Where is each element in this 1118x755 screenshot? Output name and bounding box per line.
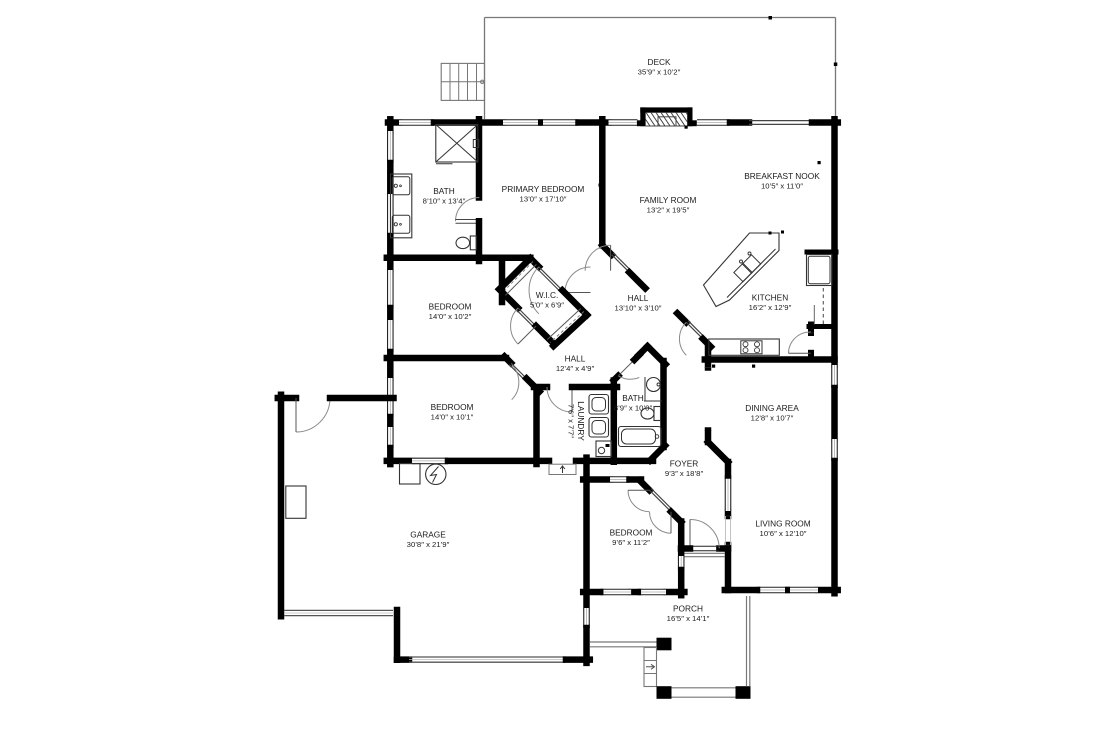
- svg-text:BEDROOM: BEDROOM: [610, 528, 653, 538]
- svg-text:16’5″ x 14’1″: 16’5″ x 14’1″: [667, 614, 710, 623]
- svg-text:10’6″ x 12’10″: 10’6″ x 12’10″: [760, 529, 807, 538]
- svg-text:BEDROOM: BEDROOM: [431, 402, 474, 412]
- svg-text:13’10″ x 3’10″: 13’10″ x 3’10″: [615, 304, 662, 313]
- svg-text:13’0″ x 17’10″: 13’0″ x 17’10″: [520, 195, 567, 204]
- svg-text:HALL: HALL: [628, 293, 649, 303]
- svg-text:HALL: HALL: [565, 354, 586, 364]
- svg-text:DECK: DECK: [647, 57, 671, 67]
- svg-text:16’2″ x 12’9″: 16’2″ x 12’9″: [749, 303, 792, 312]
- svg-text:14’0″ x 10’1″: 14’0″ x 10’1″: [431, 413, 474, 422]
- svg-text:7’6″ x 7’7″: 7’6″ x 7’7″: [567, 404, 576, 438]
- svg-text:12’8″ x 10’7″: 12’8″ x 10’7″: [751, 414, 794, 423]
- svg-text:9’3″ x 18’8″: 9’3″ x 18’8″: [665, 469, 704, 478]
- svg-text:PORCH: PORCH: [673, 604, 703, 614]
- svg-text:5’0″ x 6’9″: 5’0″ x 6’9″: [530, 301, 564, 310]
- svg-text:14’0″ x 10’2″: 14’0″ x 10’2″: [429, 312, 472, 321]
- svg-text:8’10″ x 13’4″: 8’10″ x 13’4″: [423, 197, 466, 206]
- svg-text:FOYER: FOYER: [670, 459, 699, 469]
- svg-text:9’6″ x 11’2″: 9’6″ x 11’2″: [612, 538, 650, 547]
- svg-text:10’5″ x 11’0″: 10’5″ x 11’0″: [761, 182, 803, 191]
- svg-text:35’9″ x 10’2″: 35’9″ x 10’2″: [638, 68, 681, 77]
- svg-text:FAMILY ROOM: FAMILY ROOM: [640, 195, 697, 205]
- svg-text:12’4″ x 4’9″: 12’4″ x 4’9″: [556, 364, 595, 373]
- svg-text:GARAGE: GARAGE: [410, 530, 446, 540]
- svg-text:13’2″ x 19’5″: 13’2″ x 19’5″: [647, 206, 690, 215]
- svg-text:BREAKFAST NOOK: BREAKFAST NOOK: [744, 171, 820, 181]
- svg-text:PRIMARY BEDROOM: PRIMARY BEDROOM: [502, 184, 585, 194]
- svg-text:DINING AREA: DINING AREA: [745, 403, 799, 413]
- svg-text:8’9″ x 10’0″: 8’9″ x 10’0″: [614, 404, 653, 413]
- svg-text:30’8″ x 21’9″: 30’8″ x 21’9″: [407, 540, 450, 549]
- svg-text:W.I.C.: W.I.C.: [536, 290, 559, 300]
- svg-text:BATH: BATH: [622, 393, 644, 403]
- svg-text:LAUNDRY: LAUNDRY: [576, 401, 586, 441]
- svg-text:LIVING ROOM: LIVING ROOM: [755, 519, 810, 529]
- svg-text:BEDROOM: BEDROOM: [429, 302, 472, 312]
- svg-text:KITCHEN: KITCHEN: [752, 293, 788, 303]
- svg-text:BATH: BATH: [433, 186, 455, 196]
